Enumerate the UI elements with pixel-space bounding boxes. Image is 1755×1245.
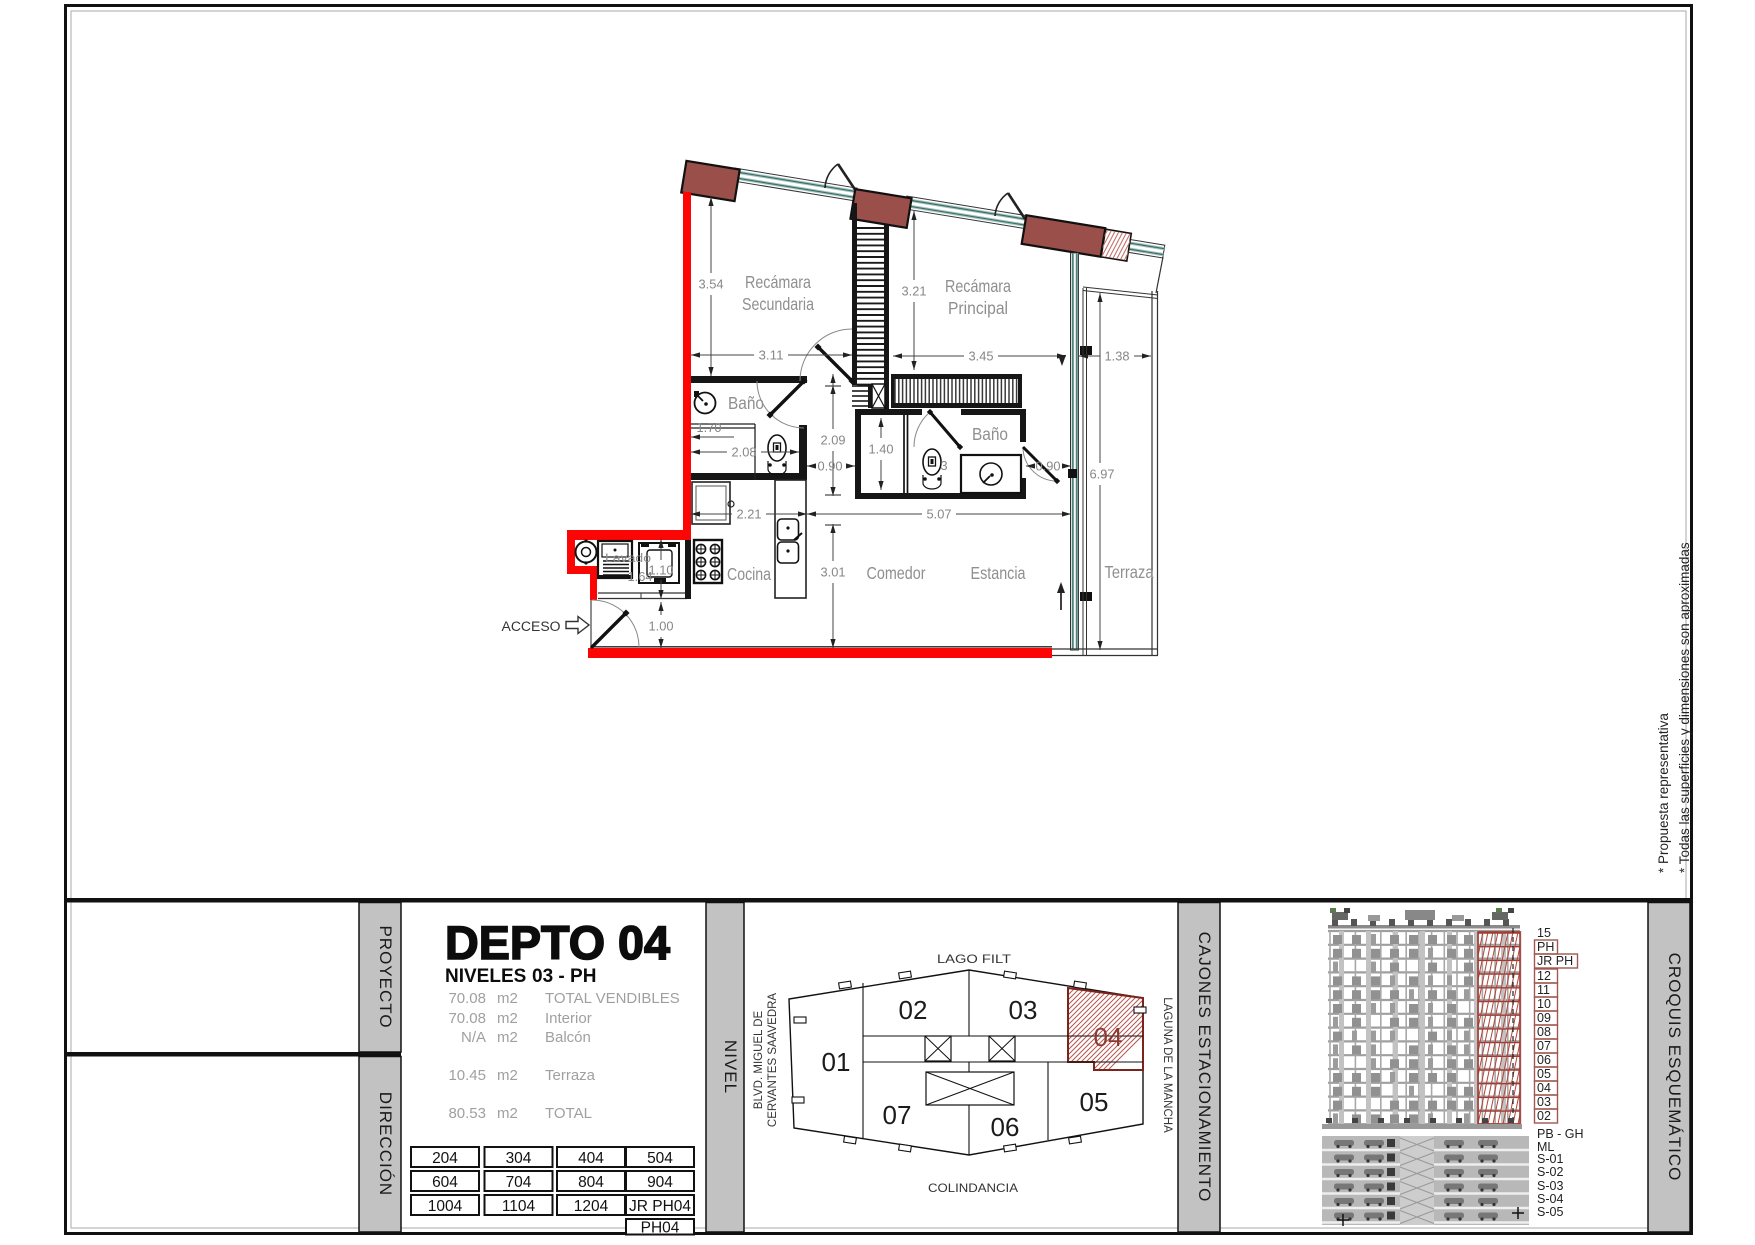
svg-text:0.90: 0.90 [1036,459,1061,474]
svg-text:Recámara: Recámara [945,276,1011,296]
svg-text:LAGUNA DE LA MANCHA: LAGUNA DE LA MANCHA [1161,997,1173,1133]
svg-text:1.64: 1.64 [628,569,653,584]
svg-text:Baño: Baño [728,393,764,413]
svg-text:3.01: 3.01 [821,565,846,580]
svg-text:BLVD. MIGUEL DE: BLVD. MIGUEL DE [753,1010,765,1109]
svg-text:Baño: Baño [972,424,1008,444]
svg-text:01: 01 [822,1047,851,1077]
svg-text:DEPTO 04: DEPTO 04 [445,916,670,969]
svg-text:m2: m2 [497,1105,518,1122]
svg-text:Balcón: Balcón [545,1029,591,1046]
svg-text:Terraza: Terraza [1105,562,1154,582]
svg-text:Recámara: Recámara [745,272,811,292]
svg-text:PH: PH [1537,940,1554,954]
svg-text:Interior: Interior [545,1010,592,1027]
svg-text:204: 204 [432,1150,458,1167]
svg-text:1204: 1204 [574,1198,609,1215]
svg-text:07: 07 [883,1100,912,1130]
svg-text:05: 05 [1080,1087,1109,1117]
svg-text:304: 304 [506,1150,532,1167]
svg-text:15: 15 [1537,926,1551,940]
svg-text:6.97: 6.97 [1090,467,1115,482]
svg-text:1004: 1004 [428,1198,463,1215]
svg-text:Principal: Principal [948,298,1008,318]
svg-text:CERVANTES SAAVEDRA: CERVANTES SAAVEDRA [767,993,779,1128]
svg-text:70.08: 70.08 [448,990,486,1007]
svg-text:JR PH04: JR PH04 [629,1198,691,1215]
svg-text:Comedor: Comedor [867,563,926,583]
svg-text:604: 604 [432,1174,458,1191]
svg-text:LAGO FILT: LAGO FILT [937,952,1012,966]
svg-text:12: 12 [1537,969,1551,983]
svg-text:3.45: 3.45 [969,349,994,364]
svg-text:Estancia: Estancia [971,563,1026,583]
svg-text:m2: m2 [497,990,518,1007]
svg-text:3.11: 3.11 [759,348,784,363]
svg-text:11: 11 [1537,983,1550,997]
svg-text:JR PH: JR PH [1537,954,1573,968]
svg-text:404: 404 [578,1150,604,1167]
svg-text:80.53: 80.53 [448,1105,486,1122]
svg-text:TOTAL VENDIBLES: TOTAL VENDIBLES [545,990,680,1007]
svg-text:2.08: 2.08 [732,445,757,460]
svg-text:03: 03 [1009,995,1038,1025]
svg-text:3.54: 3.54 [699,277,724,292]
svg-text:ACCESO: ACCESO [502,619,561,634]
svg-text:07: 07 [1537,1039,1551,1053]
svg-text:* Propuesta representativa: * Propuesta representativa [1656,713,1671,873]
svg-text:CROQUIS ESQUEMÁTICO: CROQUIS ESQUEMÁTICO [1665,953,1684,1182]
svg-text:NIVEL: NIVEL [721,1040,740,1094]
svg-text:S-05: S-05 [1537,1205,1563,1219]
svg-text:1104: 1104 [502,1198,536,1215]
svg-text:06: 06 [991,1112,1020,1142]
svg-text:05: 05 [1537,1067,1551,1081]
svg-text:CAJONES ESTACIONAMIENTO: CAJONES ESTACIONAMIENTO [1195,932,1214,1203]
svg-text:TOTAL: TOTAL [545,1105,592,1122]
svg-text:Terraza: Terraza [545,1067,596,1084]
svg-text:m2: m2 [497,1067,518,1084]
svg-text:06: 06 [1537,1053,1551,1067]
svg-text:N/A: N/A [461,1029,486,1046]
svg-text:S-02: S-02 [1537,1165,1563,1179]
svg-text:1.38: 1.38 [1105,349,1130,364]
svg-text:2.21: 2.21 [737,507,762,522]
svg-text:* Todas las superficies y dime: * Todas las superficies y dimensiones so… [1677,542,1692,873]
svg-text:PH04: PH04 [641,1220,680,1237]
svg-text:DIRECCIÓN: DIRECCIÓN [376,1092,395,1196]
svg-text:S-03: S-03 [1537,1179,1563,1193]
svg-text:Cocina: Cocina [727,564,771,584]
svg-text:1.40: 1.40 [869,442,894,457]
svg-text:3: 3 [940,458,947,473]
svg-text:504: 504 [647,1150,673,1167]
svg-text:COLINDANCIA: COLINDANCIA [928,1181,1018,1195]
svg-text:PB - GH: PB - GH [1537,1127,1584,1141]
svg-text:1.00: 1.00 [649,619,674,634]
svg-text:PROYECTO: PROYECTO [376,925,395,1028]
svg-text:08: 08 [1537,1025,1551,1039]
svg-text:S-01: S-01 [1537,1152,1563,1166]
svg-text:2.09: 2.09 [821,433,846,448]
svg-text:1.70: 1.70 [697,420,722,435]
svg-text:10.45: 10.45 [448,1067,486,1084]
svg-text:Lavado: Lavado [605,553,651,565]
svg-text:02: 02 [1537,1109,1551,1123]
svg-text:10: 10 [1537,997,1551,1011]
svg-text:3.21: 3.21 [902,284,927,299]
svg-text:03: 03 [1537,1095,1551,1109]
svg-text:70.08: 70.08 [448,1010,486,1027]
svg-text:09: 09 [1537,1011,1551,1025]
svg-text:0.90: 0.90 [818,459,843,474]
svg-text:Secundaria: Secundaria [742,294,814,314]
svg-text:704: 704 [506,1174,532,1191]
svg-text:804: 804 [578,1174,604,1191]
svg-text:m2: m2 [497,1010,518,1027]
svg-text:02: 02 [899,995,928,1025]
svg-text:S-04: S-04 [1537,1192,1563,1206]
svg-text:NIVELES: NIVELES [445,966,526,987]
svg-text:04: 04 [1537,1081,1551,1095]
svg-text:03 - PH: 03 - PH [532,966,596,987]
svg-text:m2: m2 [497,1029,518,1046]
svg-text:04: 04 [1094,1022,1123,1052]
svg-text:904: 904 [647,1174,673,1191]
svg-text:5.07: 5.07 [927,507,952,522]
